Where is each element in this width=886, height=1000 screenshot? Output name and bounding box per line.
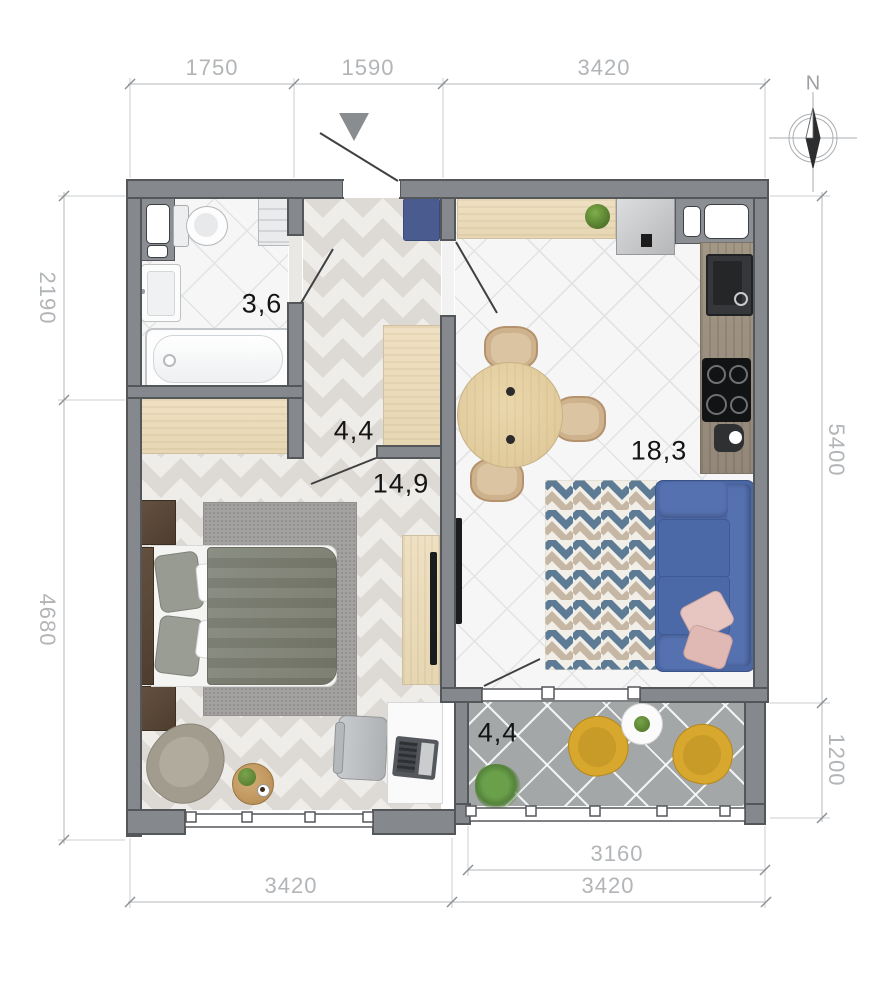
fridge	[616, 198, 675, 255]
table-detail-dot	[506, 435, 515, 444]
laptop-keyboard	[397, 741, 418, 773]
kitchen-vent-box	[675, 198, 755, 244]
shaft-opening-small	[147, 245, 168, 258]
room-area-bedroom: 14,9	[373, 469, 430, 500]
bathtub	[145, 328, 293, 392]
kitchen-sink	[706, 254, 753, 316]
bathroom-sink	[141, 264, 181, 322]
table-detail-dot	[506, 387, 515, 396]
burner-icon	[706, 394, 727, 415]
nightstand-top	[141, 500, 176, 545]
office-chair	[335, 715, 388, 782]
coffee-machine-cup	[729, 431, 742, 444]
room-area-kitchen-living: 18,3	[631, 436, 688, 467]
kitchen-door-threshold	[442, 241, 454, 315]
fridge-handle	[641, 234, 652, 247]
office-chair-back	[333, 722, 346, 774]
bed-headboard	[141, 547, 154, 685]
balcony-window	[466, 806, 745, 821]
dim-left-1: 2190	[34, 272, 60, 325]
burner-icon	[730, 396, 748, 414]
laptop-screen	[418, 743, 434, 776]
coffee-machine	[714, 424, 744, 452]
kitchen-faucet-icon	[734, 292, 748, 306]
entry-mat	[403, 198, 440, 241]
entry-threshold	[343, 181, 400, 197]
balcony-plant	[475, 764, 521, 810]
toilet-bowl-inner	[194, 213, 218, 237]
dim-top-2: 1590	[342, 55, 395, 81]
faucet-icon	[135, 289, 145, 294]
burner-icon	[729, 365, 748, 384]
room-area-hallway: 4,4	[334, 416, 375, 447]
laptop	[392, 736, 439, 780]
north-compass-icon	[769, 92, 857, 192]
vent-opening-large	[704, 204, 749, 239]
desk	[387, 702, 443, 804]
dim-top-3: 3420	[578, 55, 631, 81]
hallway-wardrobe	[383, 325, 443, 452]
counter-plant	[585, 204, 610, 229]
dim-right-1: 5400	[823, 424, 849, 477]
living-tv	[455, 518, 462, 624]
coffee-icon-center	[260, 787, 265, 792]
bed-duvet	[207, 547, 337, 685]
dim-right-2: 1200	[823, 734, 849, 787]
dim-bottom-3: 3420	[582, 873, 635, 899]
dim-bottom-2: 3160	[591, 841, 644, 867]
bathroom-cabinet	[258, 198, 292, 246]
bed	[141, 545, 335, 685]
toilet-bowl	[186, 206, 228, 246]
cooktop	[702, 358, 751, 422]
balcony-door-unit	[482, 687, 640, 701]
bedroom-window	[185, 812, 373, 827]
dim-top-1: 1750	[186, 55, 239, 81]
dim-bottom-1: 3420	[265, 873, 318, 899]
bedroom-dresser	[141, 398, 289, 454]
vent-shaft	[141, 198, 175, 261]
toilet	[172, 202, 230, 248]
bedroom-side-table	[232, 763, 274, 805]
shaft-opening-large	[146, 204, 170, 244]
bedroom-tv	[430, 552, 437, 665]
room-area-bathroom: 3,6	[242, 289, 283, 320]
floor-plan: 3,6 4,4 14,9 18,3 4,4 1750 1590 3420 219…	[0, 0, 886, 1000]
room-area-balcony: 4,4	[478, 718, 519, 749]
living-rug	[545, 480, 657, 670]
sofa	[655, 480, 755, 672]
dim-left-2: 4680	[34, 594, 60, 647]
coffee-cup-icon	[257, 784, 270, 797]
sink-basin	[147, 271, 175, 316]
nightstand-bottom	[141, 686, 176, 731]
sofa-cushion	[658, 519, 730, 578]
north-label: N	[806, 73, 820, 96]
plant-icon	[238, 768, 256, 786]
sofa-armrest-top	[658, 482, 728, 518]
vent-opening-small	[683, 206, 701, 237]
entry-arrow-icon	[339, 113, 369, 141]
burner-icon	[707, 365, 726, 384]
bathtub-drain	[163, 354, 176, 367]
dining-table	[457, 362, 563, 468]
balcony-table	[621, 703, 663, 745]
balcony-table-plant	[634, 716, 650, 732]
